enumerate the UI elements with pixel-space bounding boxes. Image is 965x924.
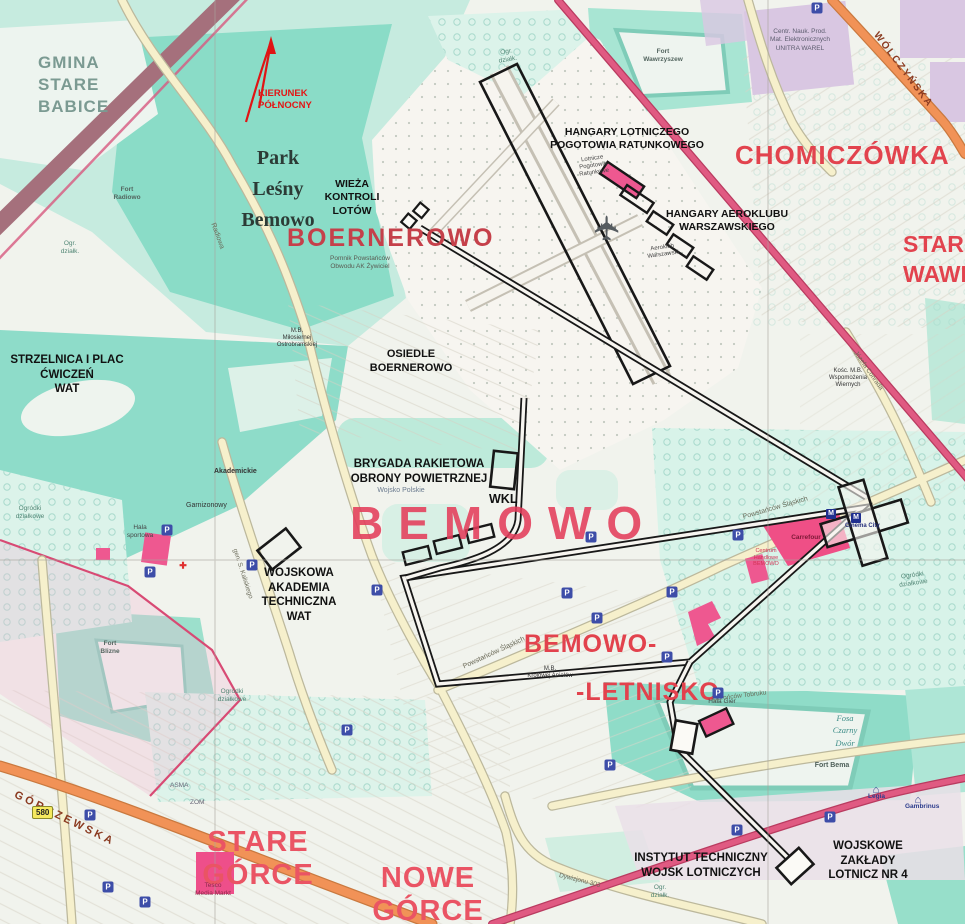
label-garnizonowy: Garnizonowy (186, 502, 227, 511)
label-osiedle-boernerowo: OSIEDLE BOERNEROWO (370, 347, 453, 375)
airport-icon: ✈ (588, 214, 628, 243)
label-zom: ZOM (190, 799, 204, 807)
road-badge-580: 580 (32, 806, 53, 819)
parking-icon: P (586, 532, 597, 543)
label-instytut-techniczny: INSTYTUT TECHNICZNY WOJSK LOTNICZYCH (634, 851, 768, 880)
label-gmina-stare-babice: GMINA STARE BABICE (38, 52, 109, 117)
label-hala-sportowa: Hala sportowa (127, 524, 153, 540)
label-bemowo-letnisko-2: -LETNISKO (576, 676, 720, 708)
label-unitra-warel: Centr. Nauk. Prod. Mat. Elektronicznych … (770, 28, 830, 53)
instytut-box (671, 720, 698, 753)
bemowo-map: KIERUNEK PÓŁNOCNY GMINA STARE BABICE Par… (0, 0, 965, 924)
label-fort-blizne: Fort Blizne (100, 640, 119, 657)
parking-icon: P (825, 812, 836, 823)
parking-icon: P (372, 585, 383, 596)
parking-icon: P (162, 525, 173, 536)
house-icon: ⌂ (915, 794, 922, 806)
parking-icon: P (713, 688, 724, 699)
label-nowe-gorce: NOWE GÓRCE (372, 862, 483, 924)
label-asma: ASMA (170, 782, 188, 790)
label-ogrodki-1: Ogródki działkowe (16, 505, 45, 521)
label-strzelnica-wat: STRZELNICA I PLAC ĆWICZEŃ WAT (10, 353, 123, 397)
label-ogr-dzialk-2: Ogr. działk. (497, 47, 518, 66)
label-fosa-czarny-dwor: Fosa Czarny Dwór (833, 712, 858, 749)
label-bemowo-letnisko-1: BEMOWO- (524, 628, 657, 660)
label-stare-wawrzyszew: STARE WAWRZYSZEW (903, 230, 965, 290)
metro-icon: M (851, 513, 861, 523)
label-cinema-city: Cinema City (845, 523, 880, 531)
parking-icon: P (247, 560, 258, 571)
label-brygada-rakietowa: BRYGADA RAKIETOWA OBRONY POWIETRZNEJ (351, 457, 488, 486)
label-fort-radiowo: Fort Radiowo (113, 186, 140, 203)
parking-icon: P (733, 530, 744, 541)
label-ogr-dzialk-1: Ogr. działk. (61, 240, 79, 256)
parking-icon: P (145, 567, 156, 578)
label-north-direction: KIERUNEK PÓŁNOCNY (258, 88, 312, 112)
parking-icon: P (592, 613, 603, 624)
parking-icon: P (662, 652, 673, 663)
hospital-cross-icon: ✚ (179, 561, 187, 572)
label-hangary-aeroklub: HANGARY AEROKLUBU WARSZAWSKIEGO (666, 208, 788, 235)
label-akademickie: Akademickie (214, 468, 257, 477)
parking-icon: P (667, 587, 678, 598)
parking-icon: P (812, 3, 823, 14)
label-wojsko-polskie: Wojsko Polskie (377, 487, 424, 496)
parking-icon: P (342, 725, 353, 736)
parking-icon: P (140, 897, 151, 908)
label-wat: WOJSKOWA AKADEMIA TECHNICZNA WAT (262, 566, 337, 625)
label-tesco: Tesco Media Markt (195, 882, 231, 898)
label-mb-krolowej: M.B. Królowej Aniołów (527, 666, 572, 680)
metro-icon: M (826, 509, 836, 519)
label-wzl-nr4: WOJSKOWE ZAKŁADY LOTNICZ NR 4 (820, 839, 917, 883)
label-lotnicze-pogotowie: Lotnicze Pogotowie Ratunkowe (577, 154, 610, 179)
parking-icon: P (103, 882, 114, 893)
label-fort-wawrzyszew: Fort Wawrzyszew (643, 48, 683, 65)
parking-icon: P (732, 825, 743, 836)
house-icon: ⌂ (873, 784, 880, 796)
parking-icon: P (562, 588, 573, 599)
parking-icon: P (605, 760, 616, 771)
label-gambrinus: Gambrinus (905, 803, 939, 811)
label-centrum-handlowe: Centrum Handlowe BEMOWO (753, 548, 779, 568)
label-fort-bema: Fort Bema (815, 762, 850, 771)
label-hangary-lpr: HANGARY LOTNICZEGO POGOTOWIA RATUNKOWEGO (550, 126, 704, 153)
label-chomiczowka: CHOMICZÓWKA (735, 139, 950, 172)
label-kosc-wspomozenia: Kośc. M.B. Wspomożenia Wiernych (829, 368, 867, 389)
label-ogr-dzialk-3: Ogr. działk. (651, 884, 669, 900)
label-ogrodki-2: Ogródki działkowe (218, 688, 247, 704)
parking-icon: P (85, 810, 96, 821)
label-boernerowo: BOERNEROWO (287, 222, 495, 254)
label-pomnik-powstancow: Pomnik Powstańców Obwodu AK Żywiciel (330, 255, 390, 271)
label-wieza-kontroli: WIEŻA KONTROLI LOTÓW (325, 178, 380, 218)
label-wkl: WKL (489, 491, 517, 507)
label-mb-milosiernej: M.B. Miłosiernej Ostrobramskiej (277, 328, 317, 349)
label-carrefour: Carrefour (791, 534, 821, 542)
